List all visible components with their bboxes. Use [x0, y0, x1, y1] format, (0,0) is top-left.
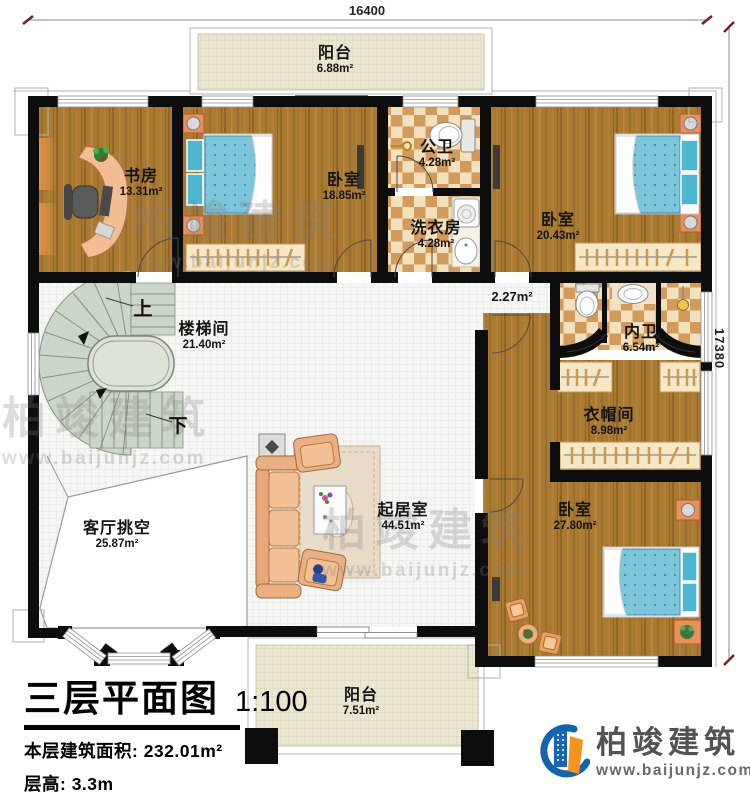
floor-area-label: 本层建筑面积: [24, 741, 138, 761]
room-label-stairwell: 楼梯间 21.40m² [178, 321, 229, 352]
brand-name: 柏竣建筑 [596, 727, 750, 758]
room-label-master-bath: 内卫 6.54m² [623, 324, 659, 355]
sliding-door-balcony [317, 627, 417, 638]
plan-title: 三层平面图 [24, 668, 219, 722]
floor-area-value: 232.01m² [144, 741, 223, 761]
floor-height-value: 3.3m [72, 774, 114, 794]
room-label-study: 书房 13.31m² [120, 168, 163, 199]
floor-plan-page: 柏竣建筑 www.baijunjz.com 柏竣建筑 www.baijunjz.… [0, 0, 750, 794]
stair-down-label: 下 [168, 411, 187, 438]
room-label-laundry: 洗衣房 4.28m² [410, 220, 461, 251]
dimension-top: 16400 [349, 3, 385, 18]
room-label-bedroom-right: 卧室 20.43m² [537, 212, 580, 243]
room-label-public-bath: 公卫 4.28m² [419, 139, 455, 170]
room-label-living-room: 起居室 44.51m² [377, 502, 428, 533]
stair-up-label: 上 [133, 294, 152, 321]
room-label-bedroom-top: 卧室 18.85m² [323, 172, 366, 203]
floor-area-row: 本层建筑面积: 232.01m² [24, 738, 308, 763]
floor-height-row: 层高: 3.3m [24, 771, 308, 794]
brand-text: 柏竣建筑 www.baijunjz.com [596, 727, 750, 780]
brand-block: 柏竣建筑 www.baijunjz.com [534, 722, 750, 784]
plan-scale: 1:100 [235, 686, 308, 719]
room-label-balcony-bottom: 阳台 7.51m² [343, 687, 379, 718]
room-label-cloakroom: 衣帽间 8.98m² [583, 407, 634, 438]
plan-title-row: 三层平面图 1:100 [24, 668, 308, 722]
room-label-bedroom-master: 卧室 27.80m² [554, 502, 597, 533]
dimension-right: 17380 [712, 328, 727, 369]
room-label-balcony-top: 阳台 6.88m² [317, 45, 353, 76]
floor-height-label: 层高: [24, 774, 66, 794]
room-label-living-void: 客厅挑空 25.87m² [83, 520, 151, 551]
room-label-hallway: 2.27m² [491, 290, 532, 305]
living-room-sofa-set [256, 433, 380, 598]
brand-logo-icon [534, 722, 590, 784]
title-block: 三层平面图 1:100 本层建筑面积: 232.01m² 层高: 3.3m [24, 668, 308, 794]
title-underline [24, 725, 240, 730]
brand-website: www.baijunjz.com [596, 762, 750, 780]
